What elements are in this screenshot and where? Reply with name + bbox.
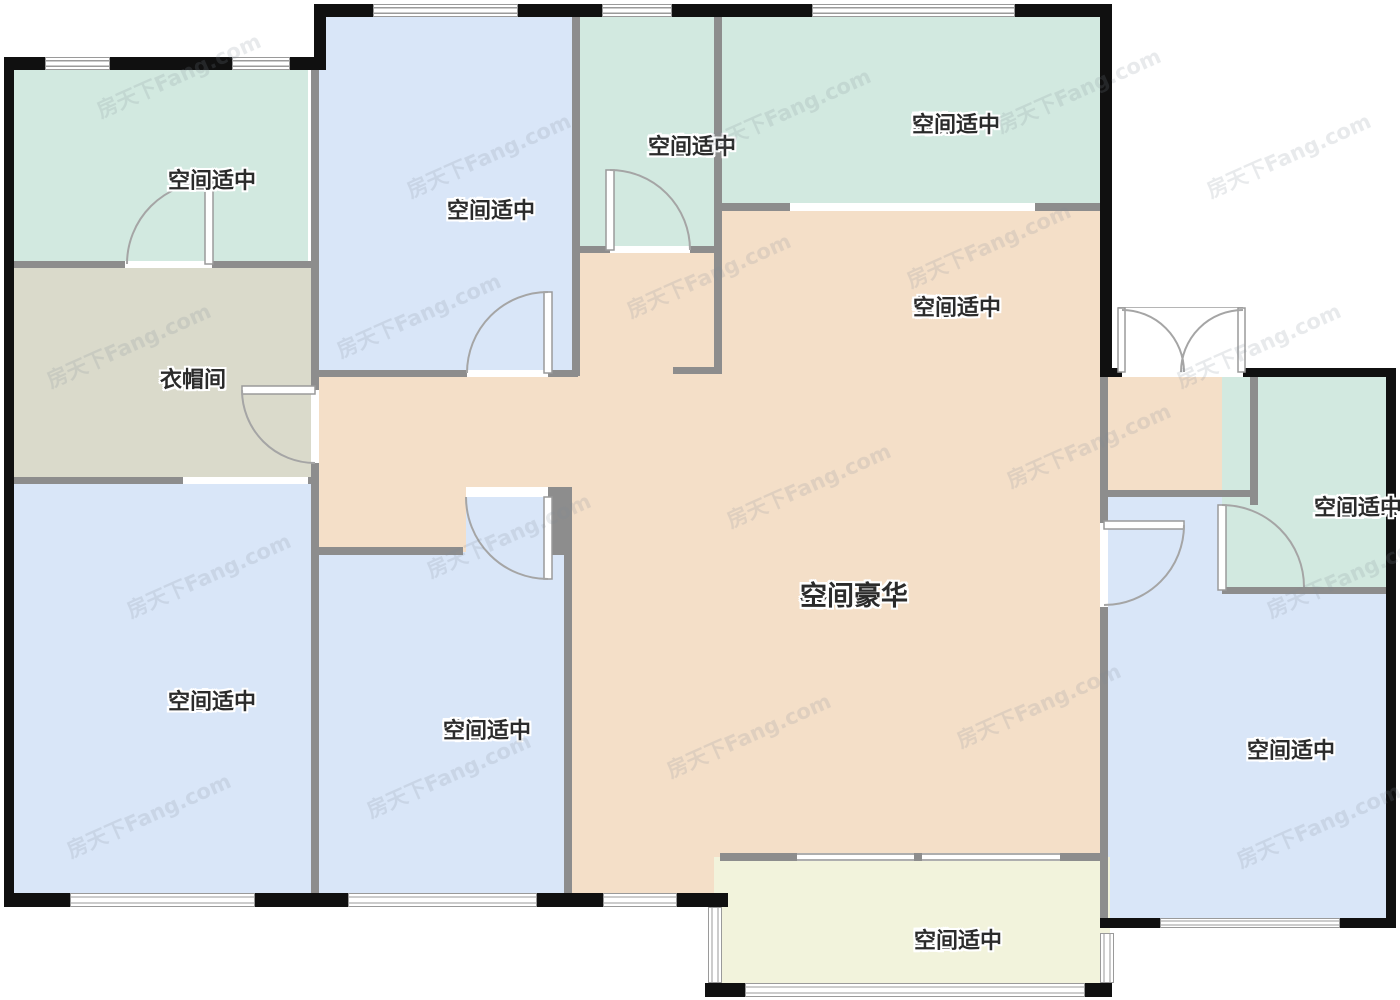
- room-desc: 空间适中: [913, 295, 1001, 323]
- wall-bedroom-a-south-left: [318, 370, 467, 377]
- opening-cloakroom-door: [311, 390, 319, 463]
- window-kitchen: [812, 4, 1015, 17]
- opening-bedroom-b-door: [466, 487, 548, 497]
- room-desc: 空间适中: [447, 198, 535, 226]
- opening-cloakroom-master-bedroom: [183, 477, 308, 484]
- balcony-corner-se: [1085, 983, 1112, 997]
- wall-kitchen-south-left: [714, 203, 790, 211]
- wall-kitchen-south-right: [1035, 203, 1108, 211]
- room-desc: 空间适中: [1247, 738, 1335, 766]
- wall-bedroom-b-east: [564, 547, 572, 900]
- wall-bathroom-south-left: [576, 246, 610, 253]
- outer-wall-east-upper: [1100, 4, 1112, 377]
- room-desc: 空间适中: [914, 928, 1002, 956]
- floorplan-canvas: 主卫空间适中卧室A空间适中卫生间空间适中厨房空间适中餐厅空间适中衣帽间客厅空间豪…: [0, 0, 1400, 1000]
- room-desc: 空间适中: [443, 718, 531, 746]
- entry-door-zone: [1118, 307, 1243, 372]
- floor-bathroom-a: [1222, 377, 1390, 593]
- opening-balcony-slider-left: [797, 853, 914, 861]
- room-name: 衣帽间: [160, 367, 226, 395]
- watermark-text: 房天下Fang.com: [1202, 105, 1376, 204]
- opening-bedroom-c-door: [1100, 523, 1108, 607]
- wall-cloakroom-south-stub: [308, 477, 319, 484]
- room-desc: 空间适中: [648, 134, 736, 162]
- floor-balcony: [714, 857, 1110, 990]
- window-bedroom-c: [1160, 918, 1340, 928]
- wall-cloakroom-south: [8, 477, 183, 484]
- floor-bedroom-b-notch: [466, 497, 548, 555]
- room-desc: 空间适中: [1314, 495, 1400, 523]
- floor-master-bath: [8, 62, 308, 267]
- wall-bathroom-a-south: [1222, 587, 1390, 594]
- wall-hall-bedroom-b: [318, 547, 463, 555]
- outer-wall-east-lower: [1386, 368, 1396, 928]
- wall-living-east-upper: [1100, 377, 1108, 523]
- wall-bedroom-a-east: [572, 8, 580, 376]
- wall-left-column-east-upper: [311, 70, 319, 390]
- window-balcony-west: [708, 907, 722, 983]
- window-balcony-south: [745, 983, 1085, 997]
- window-master-bedroom: [70, 893, 255, 907]
- opening-balcony-slider-right: [922, 853, 1060, 861]
- floor-master-bedroom: [8, 482, 314, 902]
- floor-bathroom: [576, 8, 720, 252]
- floor-bedroom-c-west: [1108, 497, 1222, 922]
- opening-kitchen-pass: [790, 203, 1035, 211]
- room-desc: 空间豪华: [800, 580, 908, 614]
- opening-bedroom-a-door: [467, 370, 548, 377]
- window-bedroom-a: [373, 4, 518, 17]
- room-desc: 空间适中: [912, 112, 1000, 140]
- wall-bedroom-c-north: [1108, 490, 1255, 497]
- entry-door-sill: [1122, 368, 1243, 377]
- opening-bathroom-door: [610, 246, 690, 253]
- window-balcony-east: [1100, 933, 1114, 983]
- balcony-corner-sw: [705, 983, 745, 997]
- room-desc: 空间适中: [168, 689, 256, 717]
- window-bedroom-b: [348, 893, 537, 907]
- window-bathroom: [602, 4, 672, 17]
- window-master-bath-1: [45, 57, 110, 70]
- wall-kitchen-west: [714, 8, 722, 373]
- window-master-bath-2: [232, 57, 290, 70]
- window-living: [603, 893, 677, 907]
- wall-master-bath-south-right: [212, 261, 314, 268]
- wall-bedroom-b-pillar: [548, 487, 572, 555]
- wall-living-east-lower: [1100, 607, 1108, 918]
- wall-master-bath-south-left: [8, 261, 125, 268]
- wall-balcony-north-mid: [914, 853, 922, 861]
- balcony-corner-nw: [708, 893, 728, 907]
- room-desc: 空间适中: [168, 168, 256, 196]
- wall-balcony-north-left: [720, 853, 797, 861]
- outer-wall-south-2: [255, 893, 348, 907]
- floor-bedroom-a: [314, 8, 576, 376]
- wall-bathroom-a-west: [1250, 377, 1258, 505]
- floor-living-west: [572, 252, 722, 895]
- outer-wall-right-section-top: [1243, 368, 1396, 377]
- outer-wall-west: [4, 57, 14, 907]
- floor-kitchen: [720, 8, 1108, 210]
- wall-balcony-north-right: [1060, 853, 1108, 861]
- opening-master-bath-door: [125, 261, 212, 268]
- wall-bedroom-a-south-right: [548, 370, 578, 377]
- outer-wall-south-1: [4, 893, 70, 907]
- wall-corridor-stub: [673, 367, 722, 374]
- outer-wall-south-3: [537, 893, 603, 907]
- wall-left-column-east-lower: [311, 463, 319, 900]
